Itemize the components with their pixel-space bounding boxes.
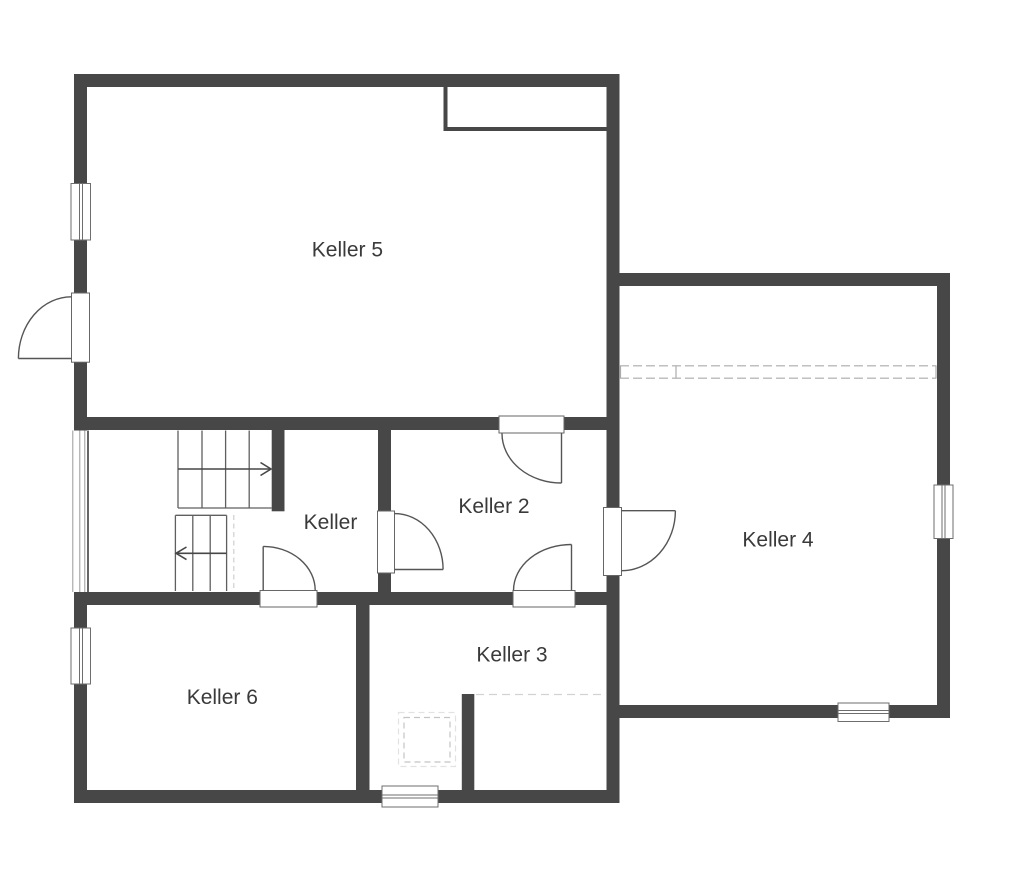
svg-text:Keller 3: Keller 3 bbox=[476, 643, 547, 666]
svg-text:Keller: Keller bbox=[304, 511, 358, 534]
svg-text:Keller 6: Keller 6 bbox=[187, 686, 258, 709]
svg-text:Keller 4: Keller 4 bbox=[742, 528, 814, 551]
svg-text:Keller 5: Keller 5 bbox=[312, 238, 383, 261]
svg-text:Keller 2: Keller 2 bbox=[458, 495, 529, 518]
